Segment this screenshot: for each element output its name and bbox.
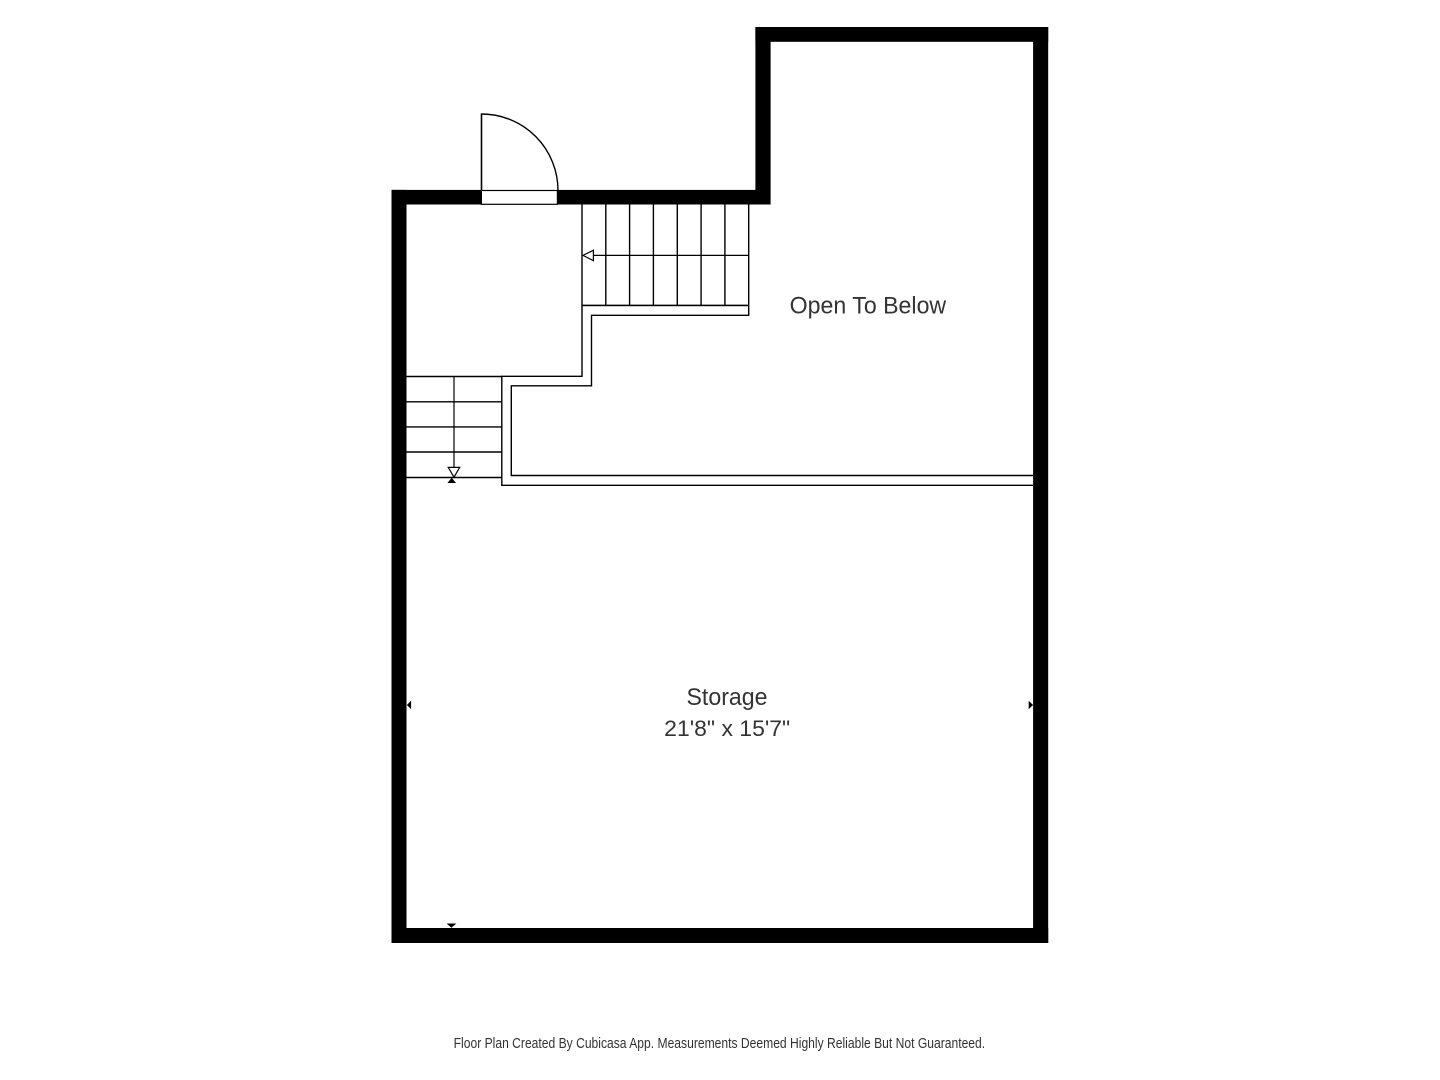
svg-text:21'8" x 15'7": 21'8" x 15'7"	[664, 716, 790, 741]
svg-text:Storage: Storage	[687, 684, 768, 711]
svg-text:Floor Plan Created By Cubicasa: Floor Plan Created By Cubicasa App. Meas…	[454, 1035, 986, 1052]
svg-text:Open To Below: Open To Below	[790, 293, 947, 320]
